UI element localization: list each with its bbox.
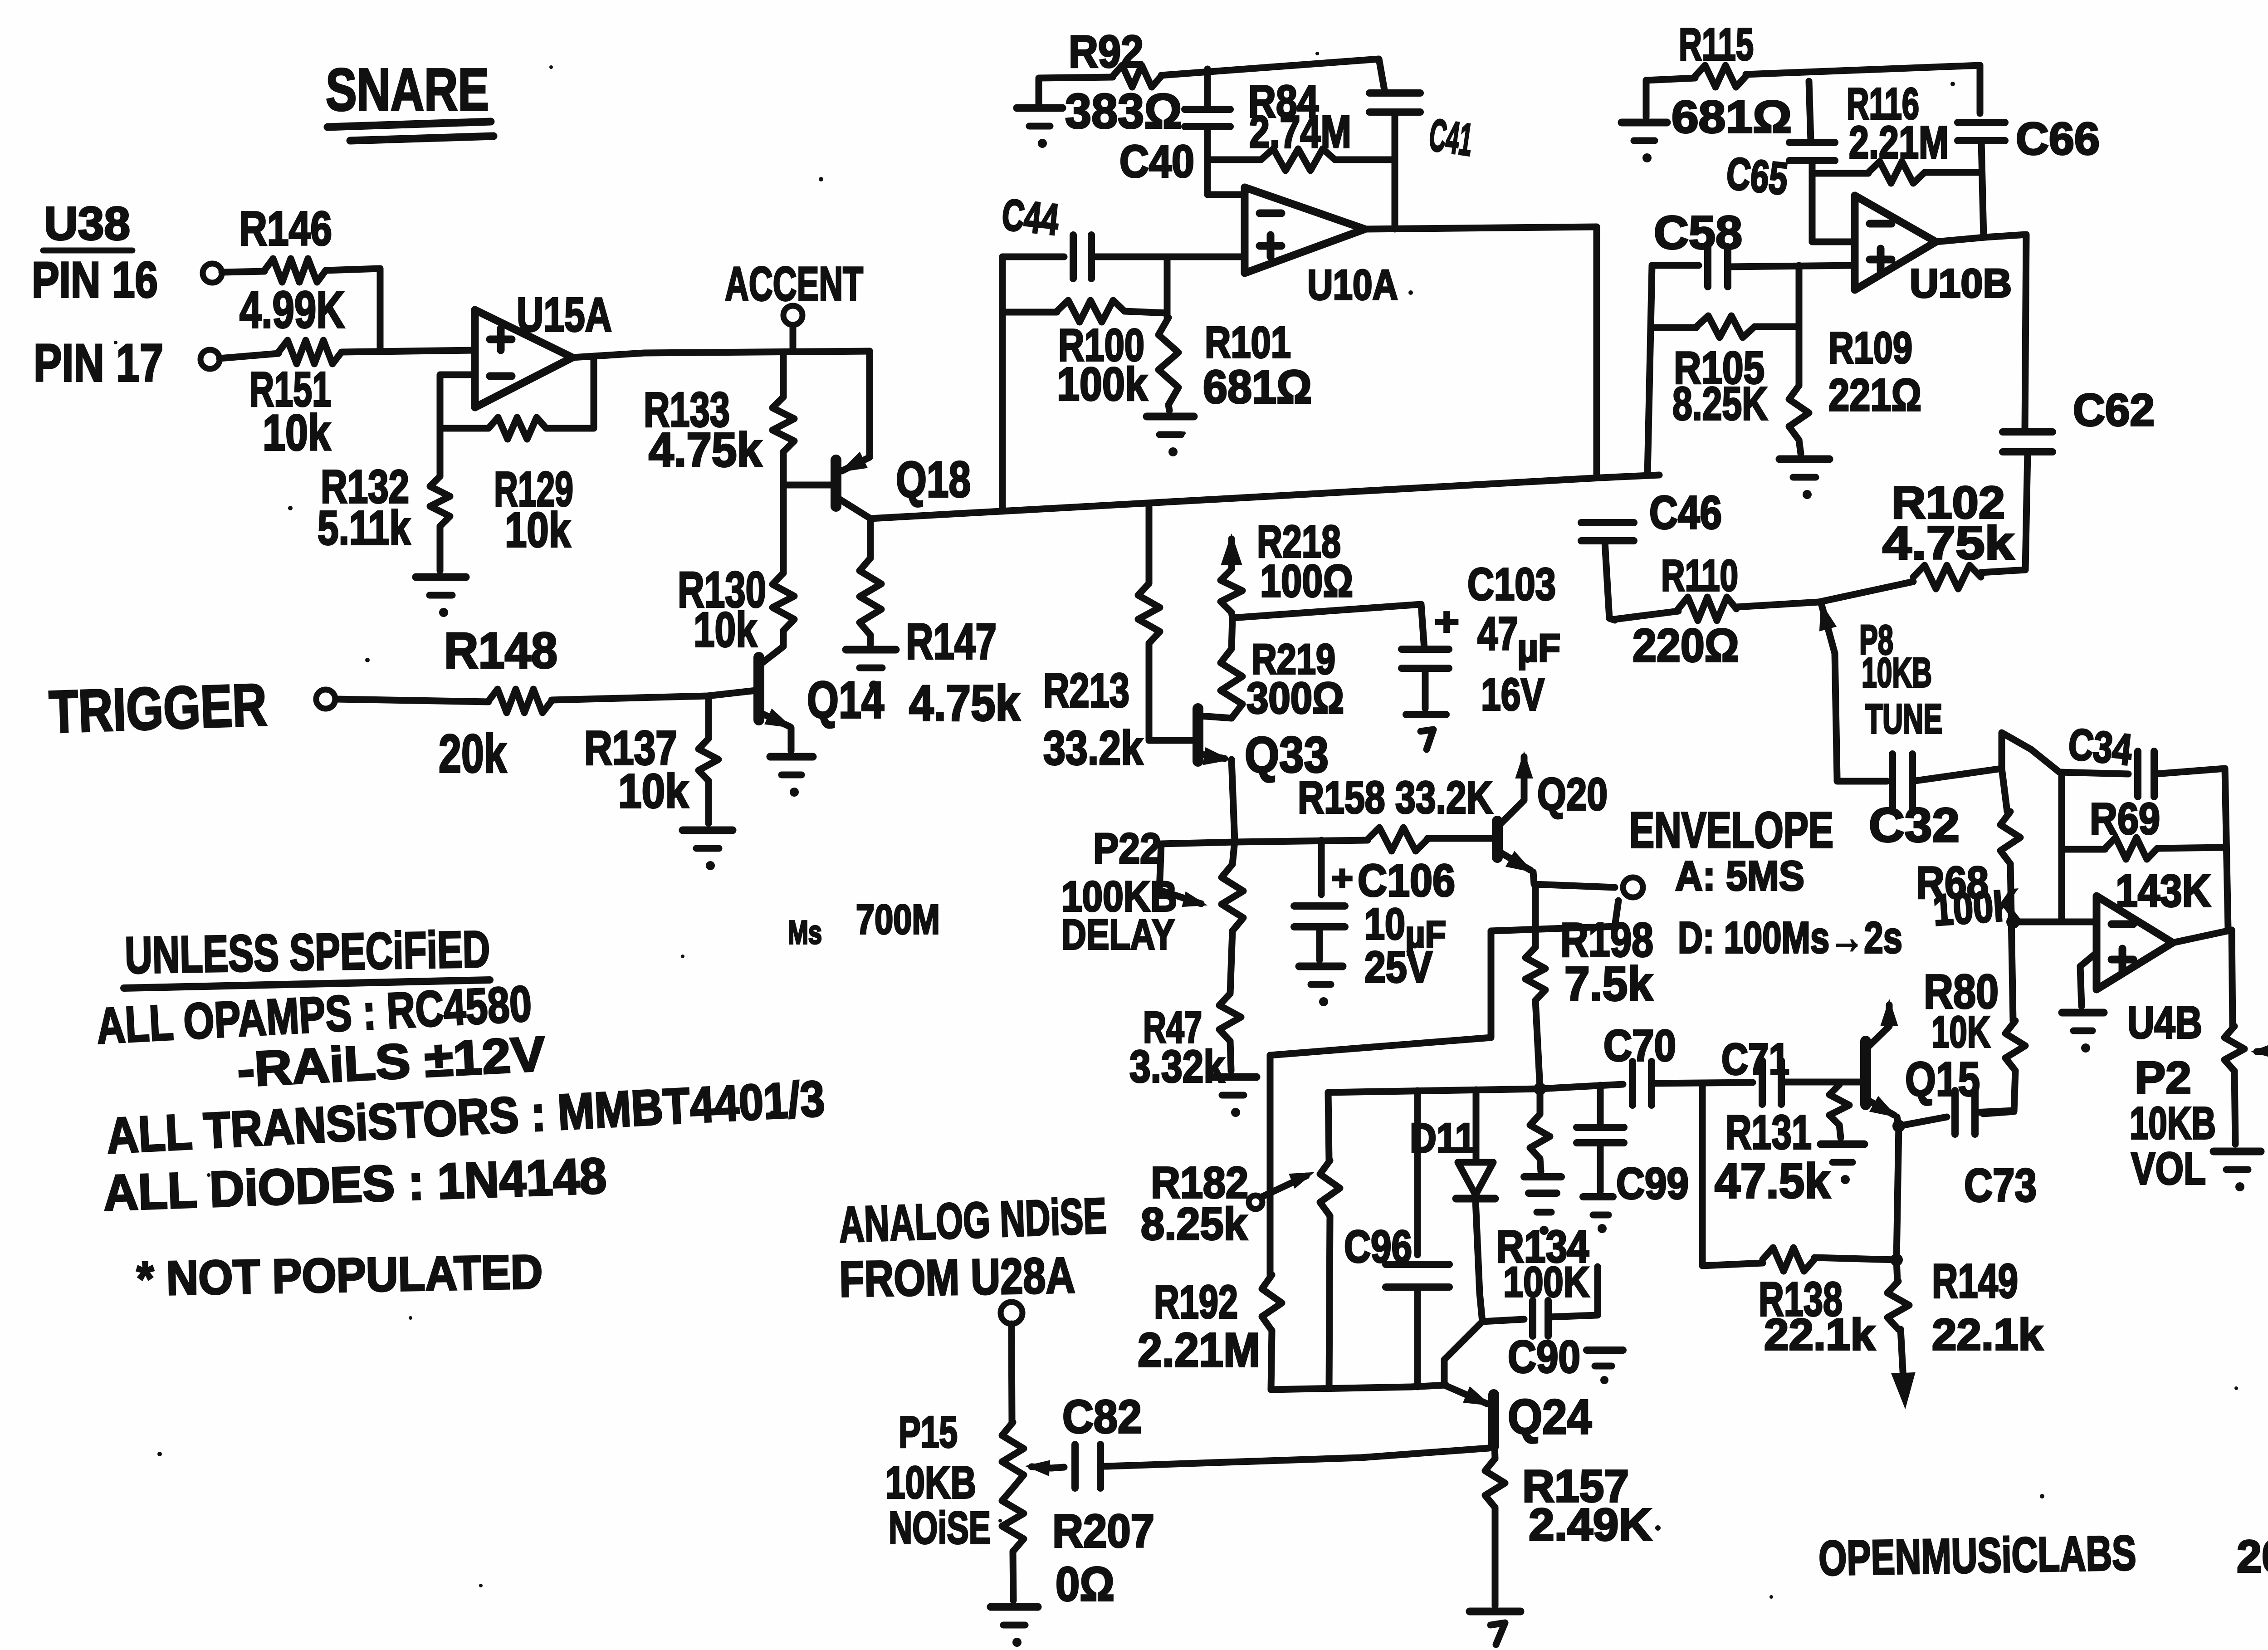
- svg-text:PIN 16: PIN 16: [32, 252, 158, 308]
- svg-text:100K: 100K: [1931, 880, 2021, 935]
- svg-text:SNARE: SNARE: [326, 56, 489, 123]
- svg-text:C44: C44: [1000, 189, 1061, 244]
- svg-text:P22: P22: [1093, 824, 1161, 872]
- svg-text:U10A: U10A: [1307, 261, 1398, 308]
- svg-text:R109: R109: [1828, 323, 1912, 372]
- svg-text:C99: C99: [1616, 1159, 1689, 1208]
- svg-text:R101: R101: [1205, 318, 1291, 367]
- svg-text:+: +: [1434, 600, 1459, 644]
- svg-text:C90: C90: [1508, 1332, 1580, 1382]
- svg-text:Q20: Q20: [1537, 769, 1608, 820]
- svg-text:R148: R148: [444, 622, 557, 679]
- svg-text:100k: 100k: [1057, 358, 1148, 410]
- svg-text:22.1k: 22.1k: [1932, 1310, 2043, 1359]
- svg-text:NOiSE: NOiSE: [889, 1503, 991, 1553]
- svg-text:D11: D11: [1410, 1115, 1476, 1161]
- svg-text:ENVELOPE: ENVELOPE: [1629, 802, 1833, 858]
- svg-text:C106: C106: [1358, 855, 1455, 906]
- svg-text:C71: C71: [1721, 1034, 1789, 1084]
- svg-text:C73: C73: [1964, 1159, 2037, 1211]
- svg-text:UNLESS SPECiFiED: UNLESS SPECiFiED: [124, 920, 490, 984]
- svg-text:2.21M: 2.21M: [1138, 1323, 1260, 1377]
- svg-text:143K: 143K: [2116, 866, 2211, 916]
- svg-text:681Ω: 681Ω: [1203, 361, 1312, 413]
- svg-text:C62: C62: [2073, 385, 2155, 436]
- svg-text:C40: C40: [1119, 136, 1194, 187]
- svg-text:TUNE: TUNE: [1865, 696, 1942, 742]
- svg-text:U38: U38: [44, 197, 130, 250]
- svg-text:10K: 10K: [1931, 1007, 1990, 1057]
- svg-text:ANALOG NDiSE: ANALOG NDiSE: [838, 1187, 1108, 1253]
- svg-text:2020: 2020: [2237, 1531, 2268, 1582]
- svg-text:R192: R192: [1154, 1276, 1238, 1328]
- svg-text:R213: R213: [1043, 664, 1129, 717]
- svg-text:25V: 25V: [1364, 942, 1432, 992]
- svg-text:22.1k: 22.1k: [1764, 1310, 1876, 1359]
- svg-text:C66: C66: [2016, 113, 2100, 164]
- svg-text:10KB: 10KB: [885, 1457, 976, 1508]
- svg-text:4.75k: 4.75k: [909, 675, 1020, 731]
- svg-text:C41: C41: [1426, 109, 1476, 166]
- svg-text:383Ω: 383Ω: [1065, 83, 1182, 138]
- svg-text:Q14: Q14: [807, 671, 884, 729]
- svg-text:8.25k: 8.25k: [1141, 1199, 1247, 1249]
- svg-text:7.5k: 7.5k: [1564, 957, 1653, 1011]
- svg-text:2.49K: 2.49K: [1529, 1499, 1652, 1550]
- svg-text:R158 33.2K: R158 33.2K: [1298, 772, 1493, 823]
- svg-text:10: 10: [1364, 899, 1405, 949]
- svg-text:R149: R149: [1932, 1254, 2018, 1308]
- svg-text:8.25K: 8.25K: [1672, 377, 1768, 430]
- svg-text:P15: P15: [899, 1407, 958, 1457]
- svg-text:FROM U28A: FROM U28A: [839, 1247, 1075, 1307]
- svg-text:Q18: Q18: [896, 451, 971, 508]
- svg-text:4.75k: 4.75k: [1882, 517, 2014, 569]
- svg-text:R115: R115: [1679, 19, 1754, 70]
- svg-text:C46: C46: [1649, 486, 1722, 539]
- svg-text:700M: 700M: [856, 896, 940, 943]
- svg-text:U4B: U4B: [2127, 997, 2202, 1048]
- svg-text:4.75k: 4.75k: [649, 423, 763, 477]
- svg-text:10KB: 10KB: [1862, 650, 1932, 696]
- svg-text:C96: C96: [1344, 1221, 1412, 1272]
- svg-text:100Ω: 100Ω: [1260, 556, 1353, 607]
- svg-text:16V: 16V: [1481, 669, 1545, 720]
- svg-text:Ms: Ms: [788, 915, 822, 951]
- svg-text:C82: C82: [1062, 1391, 1142, 1443]
- svg-text:ACCENT: ACCENT: [725, 257, 863, 311]
- svg-text:0Ω: 0Ω: [1056, 1557, 1114, 1611]
- svg-text:C103: C103: [1467, 559, 1556, 610]
- svg-text:A: 5MS: A: 5MS: [1675, 853, 1804, 899]
- svg-text:33.2k: 33.2k: [1043, 721, 1144, 775]
- svg-text:20k: 20k: [439, 724, 507, 784]
- svg-text:R147: R147: [906, 613, 997, 670]
- svg-text:3.32k: 3.32k: [1129, 1041, 1225, 1092]
- svg-text:5.11k: 5.11k: [318, 501, 411, 555]
- svg-text:P2: P2: [2135, 1053, 2191, 1103]
- svg-text:2.21M: 2.21M: [1849, 117, 1949, 168]
- svg-text:10k: 10k: [263, 405, 331, 461]
- svg-text:OPENMUSiCLABS: OPENMUSiCLABS: [1818, 1525, 2136, 1586]
- svg-text:TRIGGER: TRIGGER: [48, 671, 268, 745]
- svg-text:R131: R131: [1725, 1106, 1812, 1159]
- svg-text:681Ω: 681Ω: [1672, 92, 1792, 142]
- svg-text:R69: R69: [2090, 794, 2160, 843]
- svg-text:220Ω: 220Ω: [1633, 619, 1739, 671]
- svg-text:DELAY: DELAY: [1061, 911, 1175, 958]
- svg-text:C32: C32: [1869, 798, 1960, 852]
- svg-text:µF: µF: [1517, 627, 1560, 670]
- svg-text:R207: R207: [1052, 1505, 1154, 1557]
- svg-text:300Ω: 300Ω: [1246, 673, 1344, 723]
- svg-text:47.5k: 47.5k: [1715, 1153, 1831, 1208]
- svg-text:10KB: 10KB: [2130, 1098, 2216, 1149]
- svg-text:U15A: U15A: [517, 288, 612, 342]
- svg-text:C70: C70: [1603, 1021, 1676, 1070]
- svg-text:PIN 17: PIN 17: [34, 333, 163, 392]
- svg-text:C65: C65: [1724, 147, 1790, 204]
- svg-text:10k: 10k: [694, 602, 758, 657]
- svg-text:C34: C34: [2066, 719, 2135, 774]
- svg-text:4.99K: 4.99K: [240, 281, 345, 339]
- svg-text:U10B: U10B: [1910, 260, 2012, 306]
- svg-text:VOL: VOL: [2131, 1143, 2206, 1194]
- svg-text:D: 100Ms→2s: D: 100Ms→2s: [1678, 913, 1902, 962]
- svg-text:221Ω: 221Ω: [1828, 370, 1921, 421]
- svg-text:Q24: Q24: [1508, 1389, 1592, 1444]
- svg-text:2.74M: 2.74M: [1249, 107, 1351, 157]
- svg-text:Q15: Q15: [1905, 1053, 1980, 1106]
- svg-text:10k: 10k: [505, 502, 571, 557]
- svg-text:* NOT POPULATED: * NOT POPULATED: [136, 1245, 543, 1306]
- svg-text:47: 47: [1477, 607, 1518, 660]
- svg-text:10k: 10k: [618, 764, 689, 818]
- svg-text:+: +: [1331, 858, 1353, 898]
- svg-text:R146: R146: [239, 202, 332, 255]
- svg-text:R110: R110: [1661, 551, 1738, 600]
- svg-text:R92: R92: [1069, 26, 1144, 77]
